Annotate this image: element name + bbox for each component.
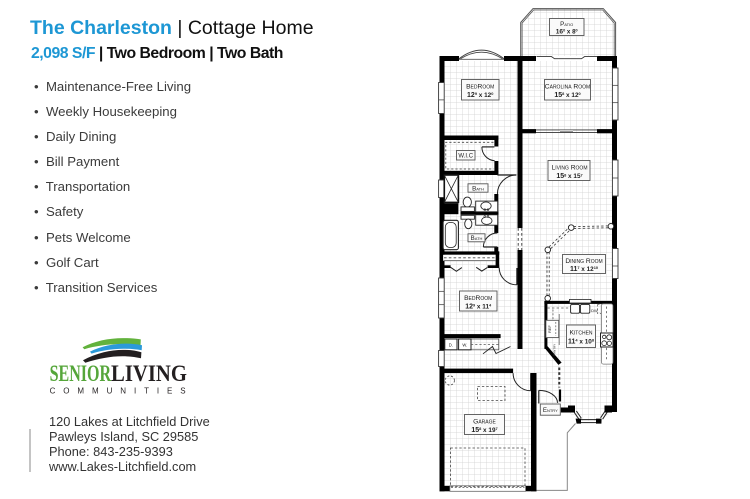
svg-text:D.: D. [449, 342, 453, 347]
svg-text:129 x 114: 129 x 114 [465, 303, 492, 311]
svg-text:LIVING: LIVING [111, 361, 187, 386]
svg-text:Living Room: Living Room [552, 164, 588, 171]
svg-text:158 x 157: 158 x 157 [556, 172, 582, 180]
svg-text:Entry: Entry [543, 407, 558, 414]
svg-text:Bath: Bath [472, 185, 484, 192]
svg-text:Pantry: Pantry [553, 344, 557, 357]
svg-text:COMMUNITIES: COMMUNITIES [50, 387, 186, 396]
svg-text:W.: W. [462, 342, 467, 347]
svg-text:Bath: Bath [471, 235, 483, 242]
svg-text:BedRoom: BedRoom [466, 84, 494, 91]
svg-text:Dining Room: Dining Room [565, 258, 602, 265]
svg-text:129 x 120: 129 x 120 [467, 91, 493, 99]
svg-text:158 x 197: 158 x 197 [471, 426, 497, 434]
svg-text:REF: REF [548, 325, 552, 333]
svg-text:160 x 80: 160 x 80 [556, 29, 578, 36]
svg-text:114 x 108: 114 x 108 [568, 338, 595, 346]
svg-text:Garage: Garage [473, 419, 496, 426]
svg-text:BedRoom: BedRoom [464, 295, 492, 302]
svg-text:Carolina Room: Carolina Room [545, 84, 590, 91]
svg-text:Kitchen: Kitchen [569, 330, 592, 337]
svg-text:158 x 120: 158 x 120 [554, 91, 580, 99]
svg-text:DW: DW [591, 308, 598, 313]
svg-text:SENIOR: SENIOR [50, 361, 112, 386]
svg-text:W.I.C: W.I.C [458, 154, 473, 160]
svg-text:Patio: Patio [560, 21, 573, 28]
